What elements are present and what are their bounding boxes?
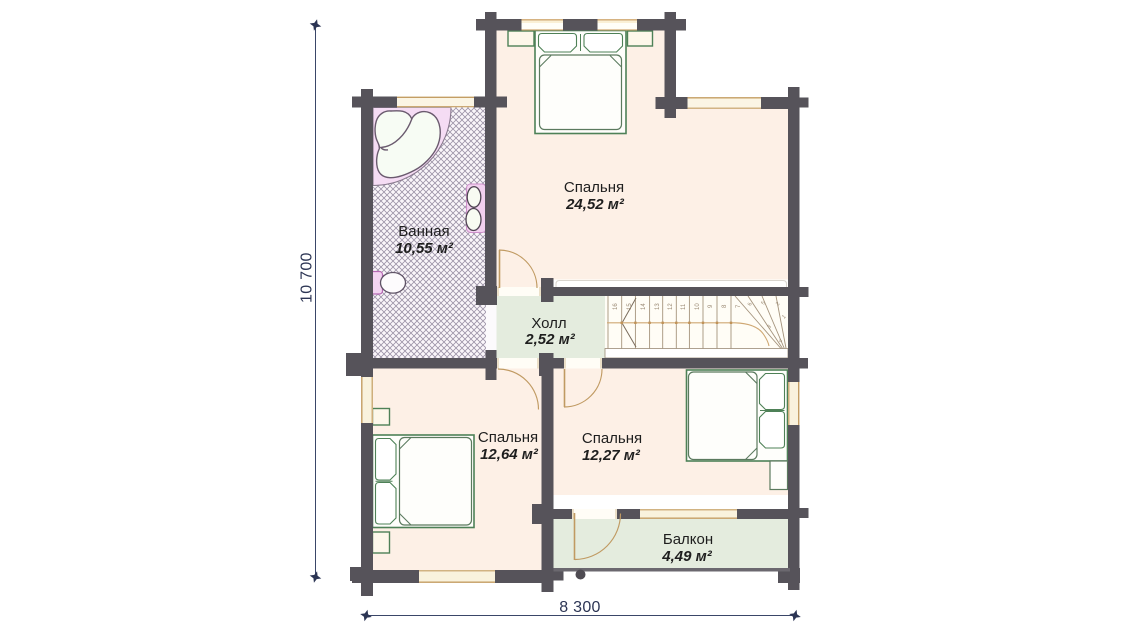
svg-text:8 300: 8 300: [559, 599, 601, 616]
svg-text:13: 13: [655, 303, 661, 310]
svg-text:12,64 м²: 12,64 м²: [480, 446, 539, 463]
svg-text:Ванная: Ванная: [398, 223, 449, 240]
svg-text:14: 14: [641, 303, 647, 310]
svg-text:2,52 м²: 2,52 м²: [524, 331, 575, 348]
svg-text:10,55 м²: 10,55 м²: [395, 240, 454, 257]
svg-text:Холл: Холл: [531, 315, 566, 332]
svg-text:12,27 м²: 12,27 м²: [582, 447, 641, 464]
svg-text:10: 10: [695, 303, 701, 310]
svg-text:15: 15: [627, 303, 633, 310]
svg-text:11: 11: [681, 303, 687, 310]
svg-text:Спальня: Спальня: [582, 430, 642, 447]
svg-text:16: 16: [613, 303, 619, 310]
svg-text:Балкон: Балкон: [663, 531, 713, 548]
svg-text:10 700: 10 700: [299, 252, 316, 303]
svg-text:Спальня: Спальня: [564, 179, 624, 196]
svg-text:Спальня: Спальня: [478, 429, 538, 446]
svg-text:12: 12: [668, 303, 674, 310]
svg-text:24,52 м²: 24,52 м²: [565, 196, 625, 213]
svg-text:4,49 м²: 4,49 м²: [661, 548, 712, 565]
